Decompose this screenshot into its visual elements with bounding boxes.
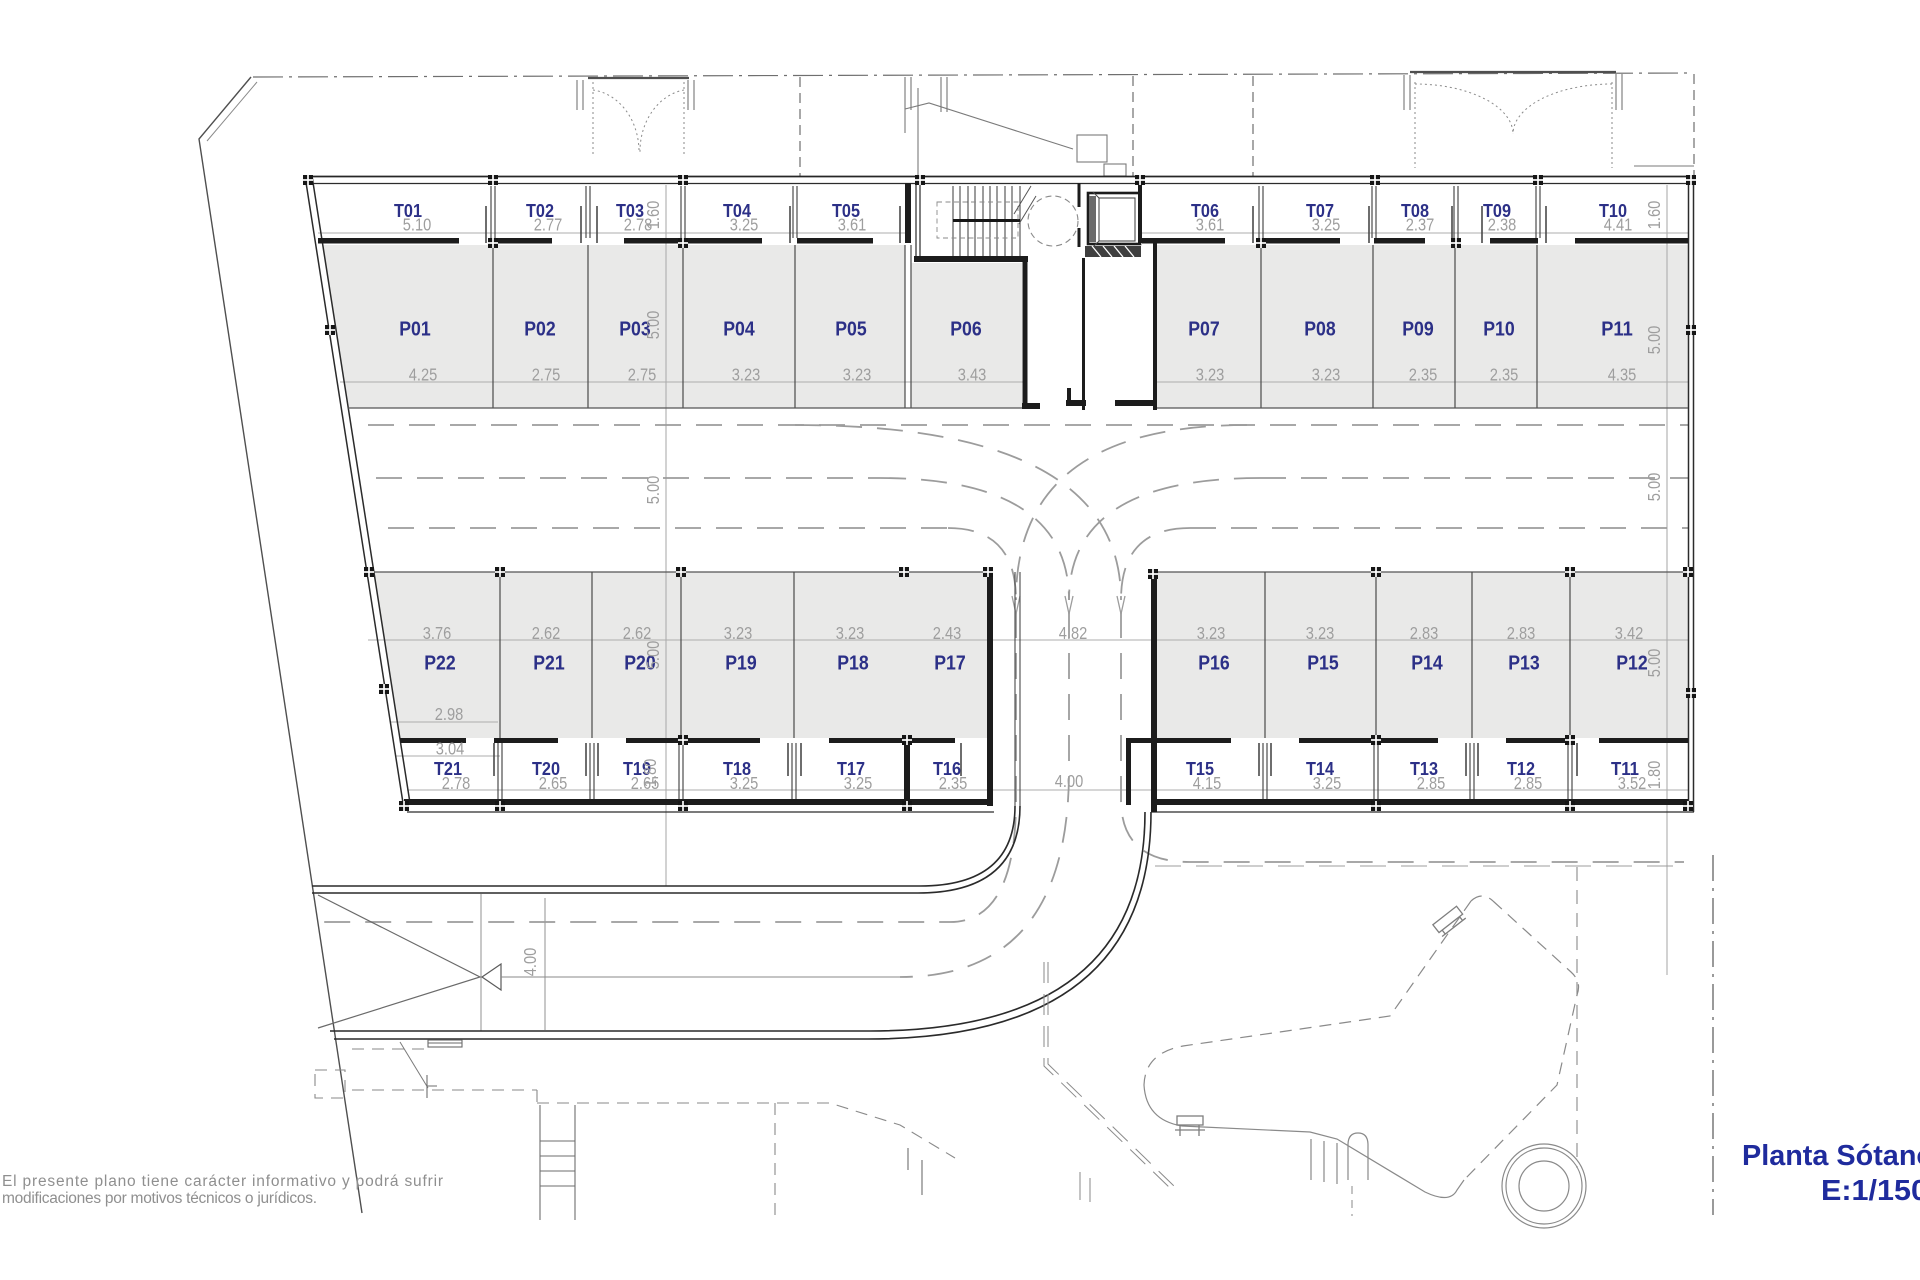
svg-text:P02: P02 [524, 319, 556, 341]
svg-text:P16: P16 [1198, 653, 1230, 675]
svg-text:3.76: 3.76 [423, 623, 452, 643]
svg-text:El presente plano tiene caráct: El presente plano tiene carácter informa… [2, 1173, 443, 1190]
svg-text:4.41: 4.41 [1604, 215, 1633, 235]
svg-text:4.00: 4.00 [1055, 771, 1084, 791]
svg-text:modificaciones por motivos téc: modificaciones por motivos técnicos o ju… [2, 1190, 317, 1207]
svg-text:4.82: 4.82 [1059, 623, 1088, 643]
svg-text:P05: P05 [835, 319, 867, 341]
svg-text:3.43: 3.43 [958, 365, 987, 385]
svg-text:P13: P13 [1508, 653, 1540, 675]
svg-text:2.75: 2.75 [628, 365, 657, 385]
svg-text:3.23: 3.23 [1306, 623, 1335, 643]
svg-text:5.00: 5.00 [643, 311, 663, 340]
svg-text:3.25: 3.25 [844, 773, 873, 793]
svg-text:P14: P14 [1411, 653, 1443, 675]
svg-text:2.62: 2.62 [532, 623, 561, 643]
svg-text:2.38: 2.38 [1488, 215, 1517, 235]
svg-text:1.60: 1.60 [643, 201, 663, 230]
svg-text:P21: P21 [533, 653, 565, 675]
svg-text:3.25: 3.25 [1312, 215, 1341, 235]
svg-text:4.15: 4.15 [1193, 773, 1222, 793]
svg-text:2.83: 2.83 [1410, 623, 1439, 643]
svg-text:3.25: 3.25 [1313, 773, 1342, 793]
svg-text:2.43: 2.43 [933, 623, 962, 643]
svg-text:1.80: 1.80 [1644, 761, 1664, 790]
svg-text:3.23: 3.23 [1196, 365, 1225, 385]
svg-text:P07: P07 [1188, 319, 1220, 341]
svg-text:E:1/150: E:1/150 [1821, 1175, 1920, 1207]
svg-text:P18: P18 [837, 653, 869, 675]
svg-text:3.61: 3.61 [838, 215, 867, 235]
svg-text:P15: P15 [1307, 653, 1339, 675]
svg-text:P01: P01 [399, 319, 431, 341]
svg-text:5.00: 5.00 [643, 476, 663, 505]
svg-text:3.52: 3.52 [1618, 773, 1647, 793]
svg-text:1.80: 1.80 [640, 759, 660, 788]
svg-text:2.83: 2.83 [1507, 623, 1536, 643]
svg-text:Planta Sótano: Planta Sótano [1742, 1140, 1920, 1172]
svg-text:2.98: 2.98 [435, 704, 464, 724]
svg-text:2.35: 2.35 [1409, 365, 1438, 385]
svg-text:3.04: 3.04 [436, 739, 465, 759]
svg-text:P06: P06 [950, 319, 982, 341]
svg-text:3.25: 3.25 [730, 773, 759, 793]
svg-text:3.23: 3.23 [724, 623, 753, 643]
svg-text:5.10: 5.10 [403, 215, 432, 235]
svg-text:2.77: 2.77 [534, 215, 563, 235]
svg-text:2.65: 2.65 [539, 773, 568, 793]
svg-text:1.60: 1.60 [1644, 201, 1664, 230]
svg-text:3.23: 3.23 [1312, 365, 1341, 385]
svg-text:P22: P22 [424, 653, 456, 675]
svg-text:P17: P17 [934, 653, 966, 675]
svg-text:2.85: 2.85 [1417, 773, 1446, 793]
svg-text:4.25: 4.25 [409, 365, 438, 385]
svg-text:3.23: 3.23 [843, 365, 872, 385]
svg-text:4.00: 4.00 [520, 948, 540, 977]
svg-text:2.78: 2.78 [442, 773, 471, 793]
svg-text:P19: P19 [725, 653, 757, 675]
svg-text:5.00: 5.00 [1644, 473, 1664, 502]
svg-text:5.00: 5.00 [1644, 649, 1664, 678]
svg-text:P11: P11 [1601, 319, 1633, 341]
svg-text:2.35: 2.35 [939, 773, 968, 793]
svg-text:P09: P09 [1402, 319, 1434, 341]
svg-text:2.35: 2.35 [1490, 365, 1519, 385]
svg-text:P08: P08 [1304, 319, 1336, 341]
svg-text:5.00: 5.00 [643, 641, 663, 670]
svg-text:2.85: 2.85 [1514, 773, 1543, 793]
svg-text:3.23: 3.23 [732, 365, 761, 385]
svg-text:3.61: 3.61 [1196, 215, 1225, 235]
svg-text:2.62: 2.62 [623, 623, 652, 643]
svg-text:P10: P10 [1483, 319, 1515, 341]
svg-text:3.42: 3.42 [1615, 623, 1644, 643]
svg-text:3.23: 3.23 [1197, 623, 1226, 643]
svg-text:4.35: 4.35 [1608, 365, 1637, 385]
svg-text:2.37: 2.37 [1406, 215, 1435, 235]
svg-text:2.75: 2.75 [532, 365, 561, 385]
svg-text:P04: P04 [723, 319, 755, 341]
svg-text:3.23: 3.23 [836, 623, 865, 643]
svg-text:5.00: 5.00 [1644, 326, 1664, 355]
svg-text:3.25: 3.25 [730, 215, 759, 235]
